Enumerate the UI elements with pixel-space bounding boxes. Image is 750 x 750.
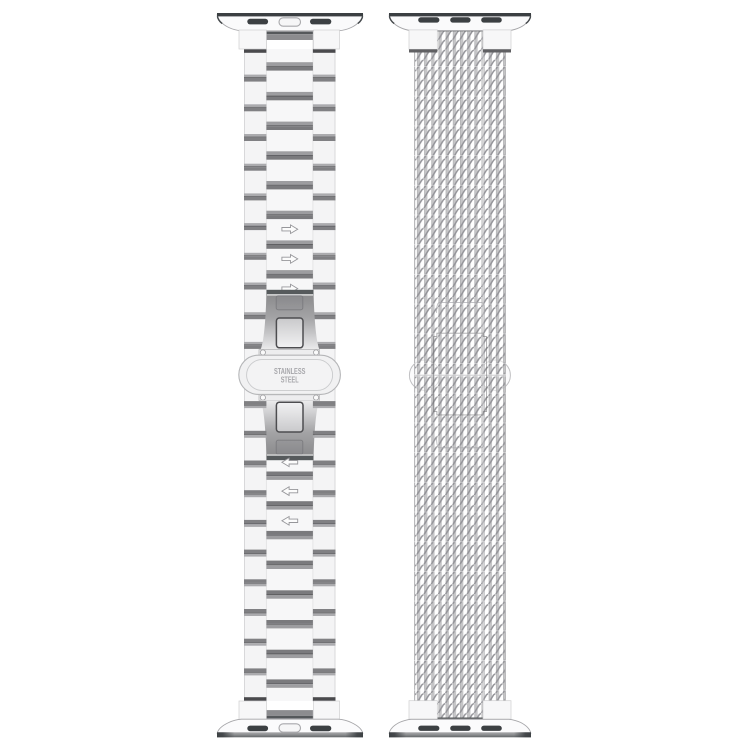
- svg-text:STEEL: STEEL: [281, 375, 299, 385]
